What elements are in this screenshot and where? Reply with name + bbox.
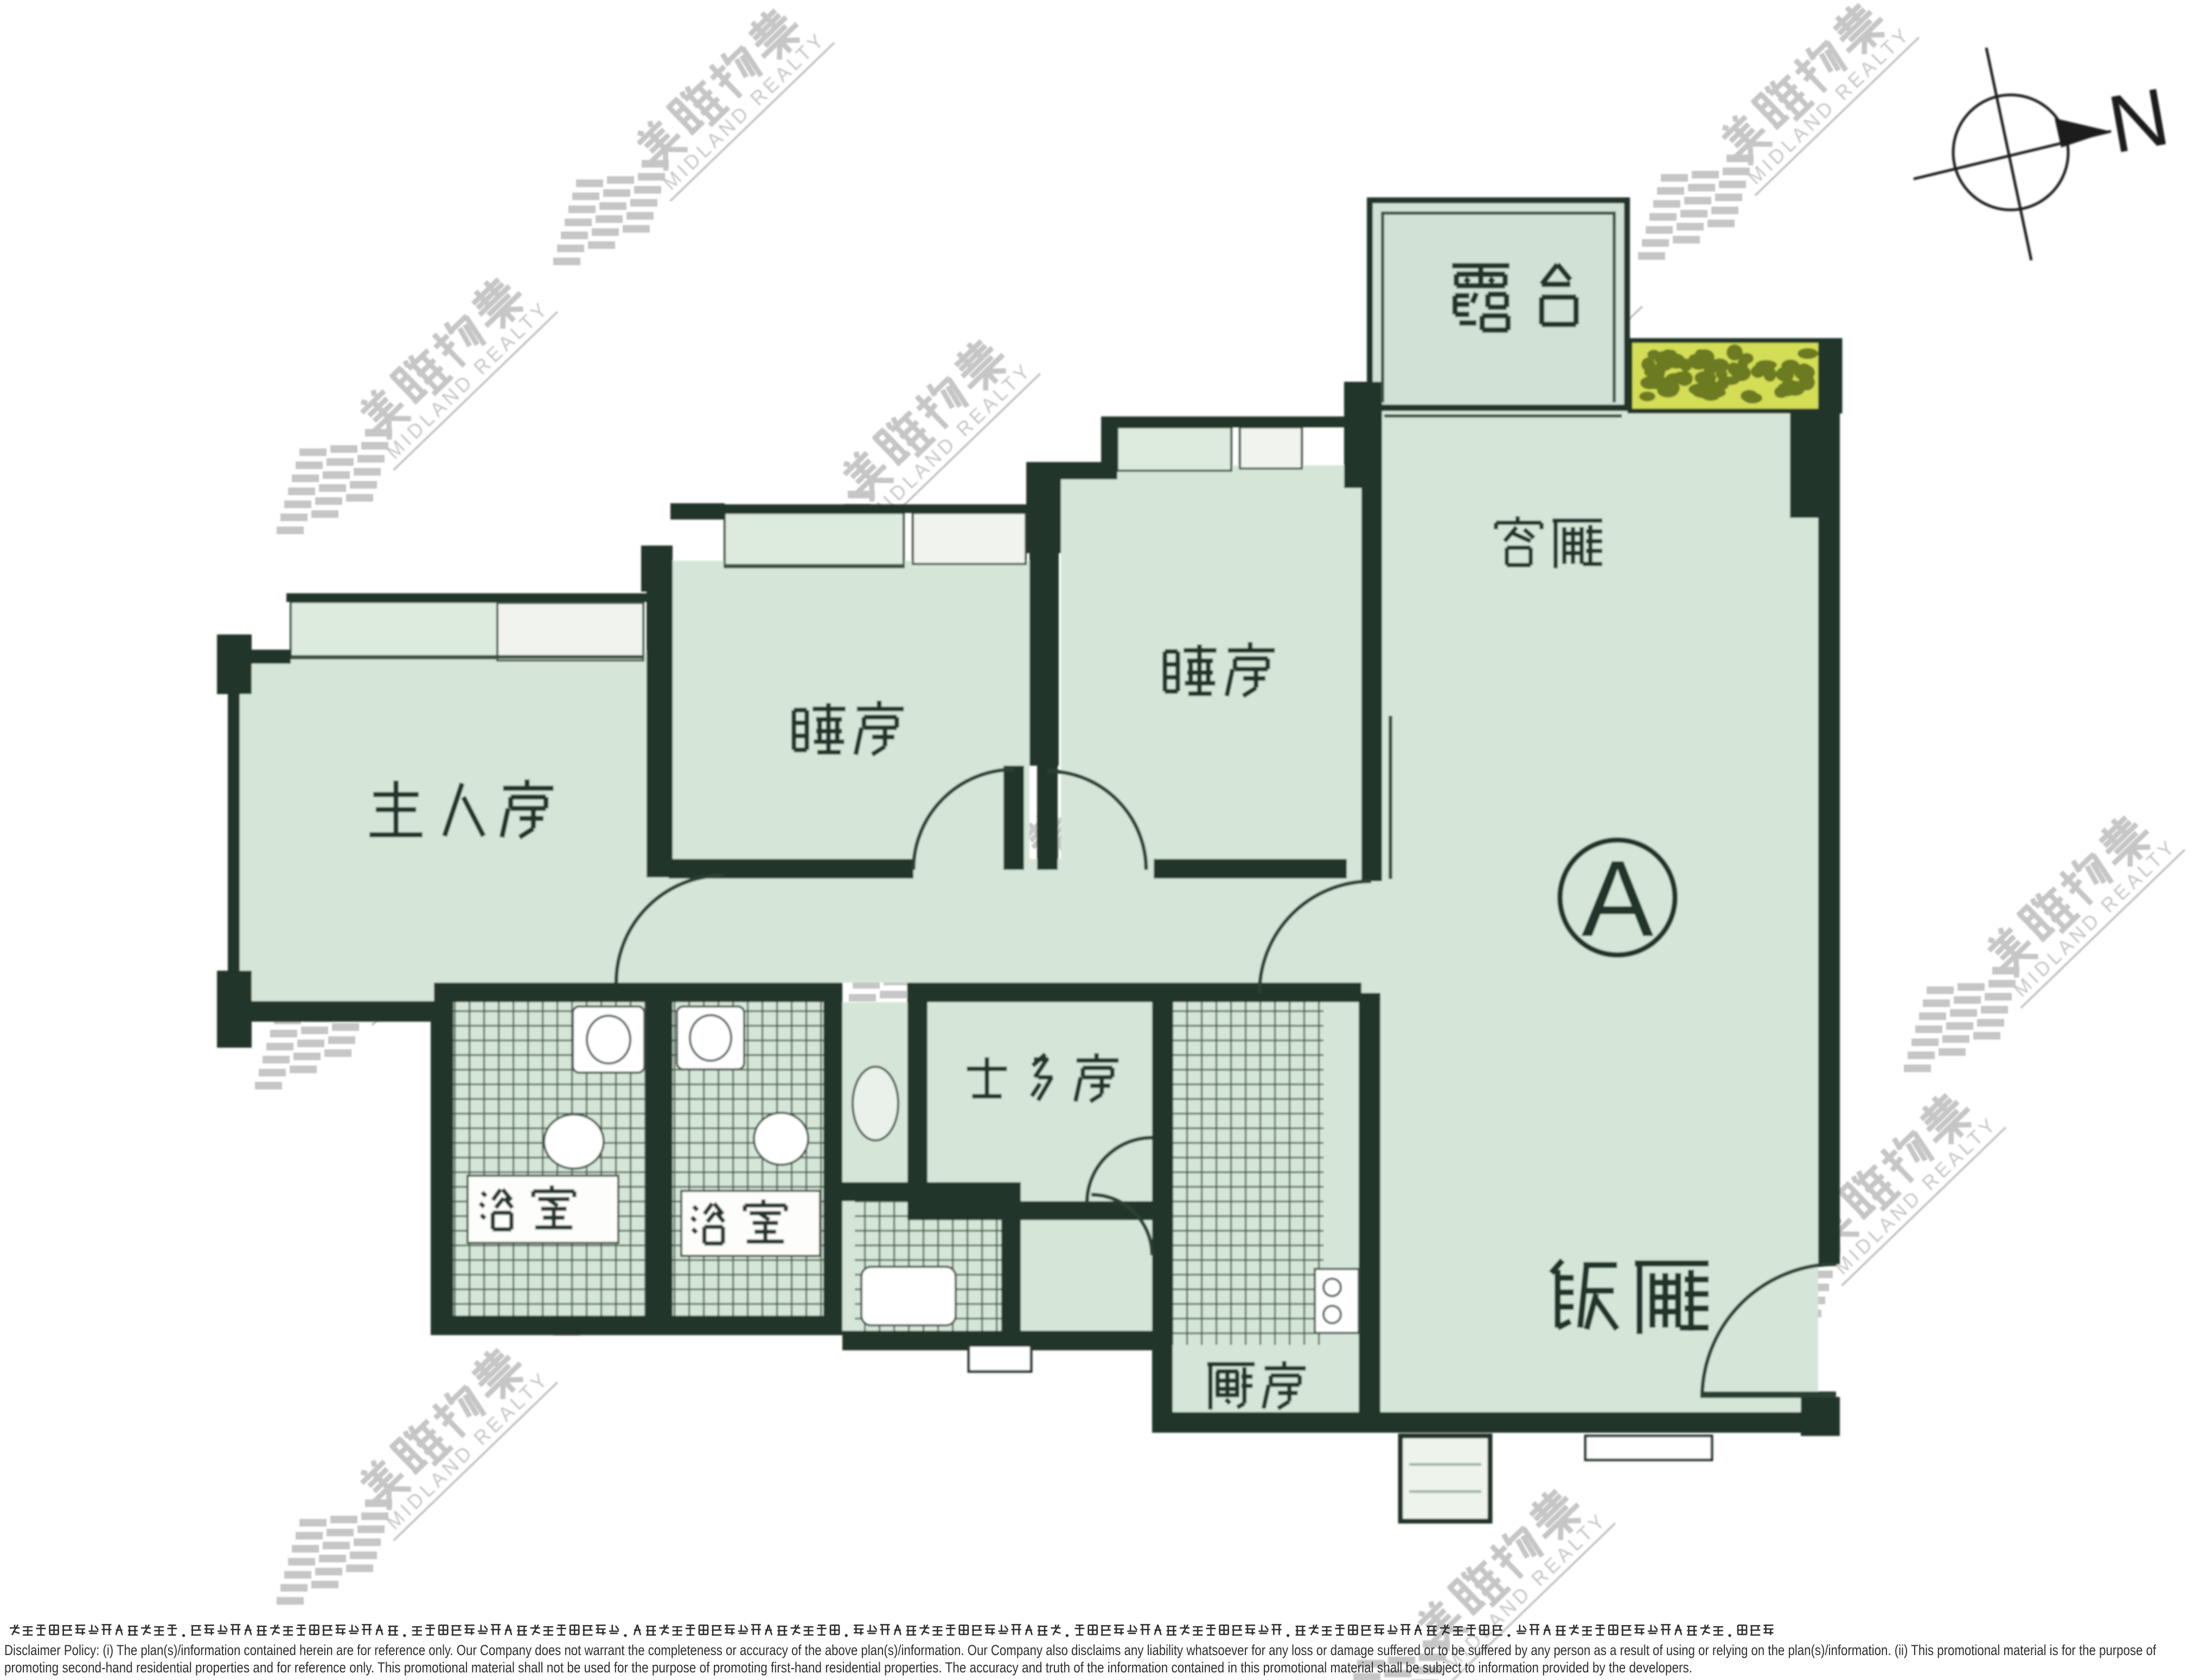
svg-text:promoting second-hand resident: promoting second-hand residential proper… [4, 1659, 1692, 1676]
svg-text:Disclaimer Policy: (i) The pla: Disclaimer Policy: (i) The plan(s)/infor… [4, 1642, 2156, 1658]
svg-text:A: A [1581, 838, 1654, 959]
